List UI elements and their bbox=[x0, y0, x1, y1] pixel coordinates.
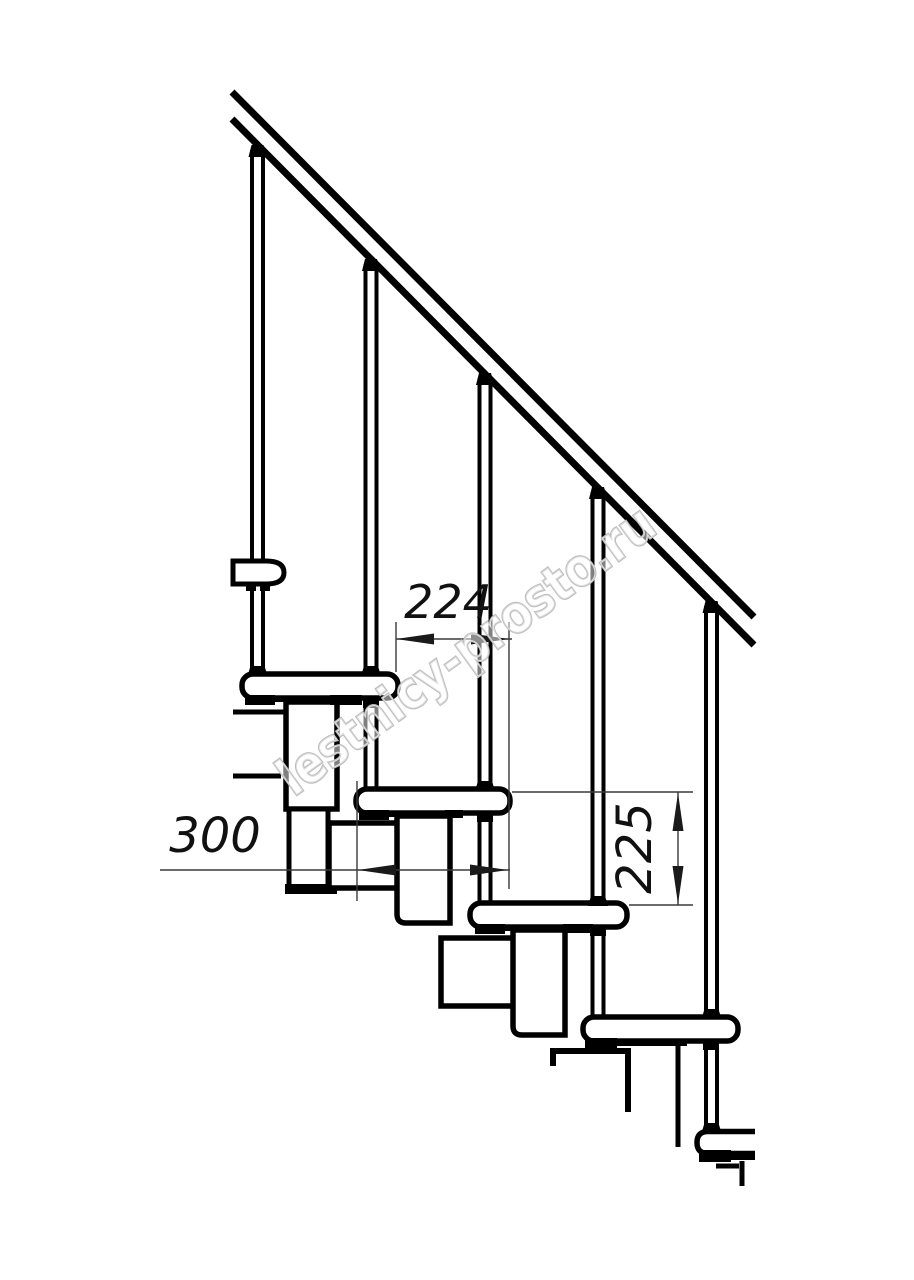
baluster-5 bbox=[703, 601, 721, 1018]
handrail bbox=[232, 92, 754, 645]
baluster-2 bbox=[362, 259, 380, 675]
tread-3 bbox=[470, 903, 627, 927]
baluster-3-cap bbox=[476, 373, 494, 385]
handrail-bracket bbox=[233, 561, 284, 591]
staircase-drawing-canvas: 224 300 225 lestnicy-prosto.ru bbox=[0, 0, 914, 1280]
tread-2 bbox=[356, 789, 510, 813]
baluster-4-stub bbox=[590, 928, 606, 1018]
watermark-text: lestnicy-prosto.ru bbox=[266, 494, 667, 808]
dim-rise-arrow-down bbox=[673, 866, 684, 904]
tread-4 bbox=[583, 1017, 738, 1041]
tread-4-fasteners bbox=[585, 1038, 687, 1048]
spine-module-1-lower bbox=[289, 809, 328, 889]
tread-5-fasteners bbox=[699, 1150, 755, 1162]
spine-module-3 bbox=[513, 930, 565, 1035]
baluster-5-cap bbox=[703, 601, 721, 613]
handrail-top-line bbox=[232, 92, 754, 617]
dim-rise-arrow-up bbox=[673, 793, 684, 831]
staircase-technical-drawing: 224 300 225 lestnicy-prosto.ru bbox=[0, 0, 914, 1280]
spine-connector-3 bbox=[441, 938, 518, 1006]
baluster-4-cap bbox=[589, 487, 607, 499]
dim-depth-value: 300 bbox=[169, 808, 261, 864]
dim-rise-value: 225 bbox=[607, 802, 663, 894]
spine-connector-2 bbox=[329, 823, 402, 888]
baluster-2-cap bbox=[362, 259, 380, 271]
baluster-1-cap bbox=[249, 145, 267, 157]
spine-connector-4-partial bbox=[553, 1051, 628, 1112]
baluster-5-stub bbox=[703, 1042, 719, 1132]
baluster-3-stub bbox=[477, 814, 493, 905]
baluster-1 bbox=[249, 145, 267, 675]
